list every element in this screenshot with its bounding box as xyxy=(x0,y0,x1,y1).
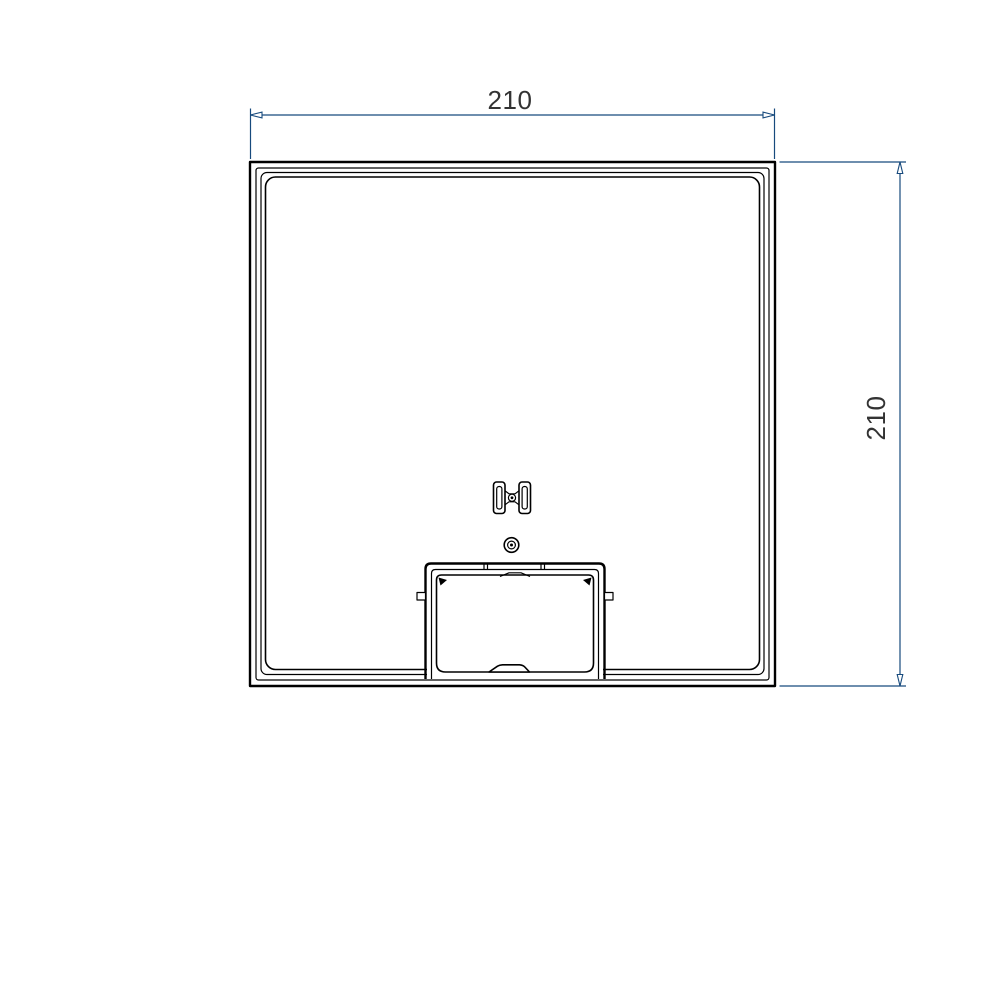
drawing-canvas: 210 210 xyxy=(0,0,1000,1000)
latch-pivot-dot xyxy=(511,496,514,499)
arrowhead-top-icon xyxy=(897,162,903,174)
screw-boss xyxy=(504,538,519,553)
hatch-side-tab-right xyxy=(605,593,614,601)
arrowhead-left-icon xyxy=(251,112,263,118)
part-view xyxy=(250,162,775,686)
height-dimension-value: 210 xyxy=(861,396,891,441)
screw-boss-center-dot xyxy=(510,544,513,547)
width-dimension: 210 xyxy=(251,85,775,159)
cad-drawing: 210 210 xyxy=(0,0,1000,1000)
width-dimension-value: 210 xyxy=(488,85,533,115)
hatch-side-tab-left xyxy=(417,593,426,601)
hatch-cutout-mask xyxy=(427,556,603,676)
height-dimension: 210 xyxy=(780,162,907,686)
latch-feature xyxy=(494,482,531,514)
arrowhead-bottom-icon xyxy=(897,675,903,687)
arrowhead-right-icon xyxy=(763,112,775,118)
